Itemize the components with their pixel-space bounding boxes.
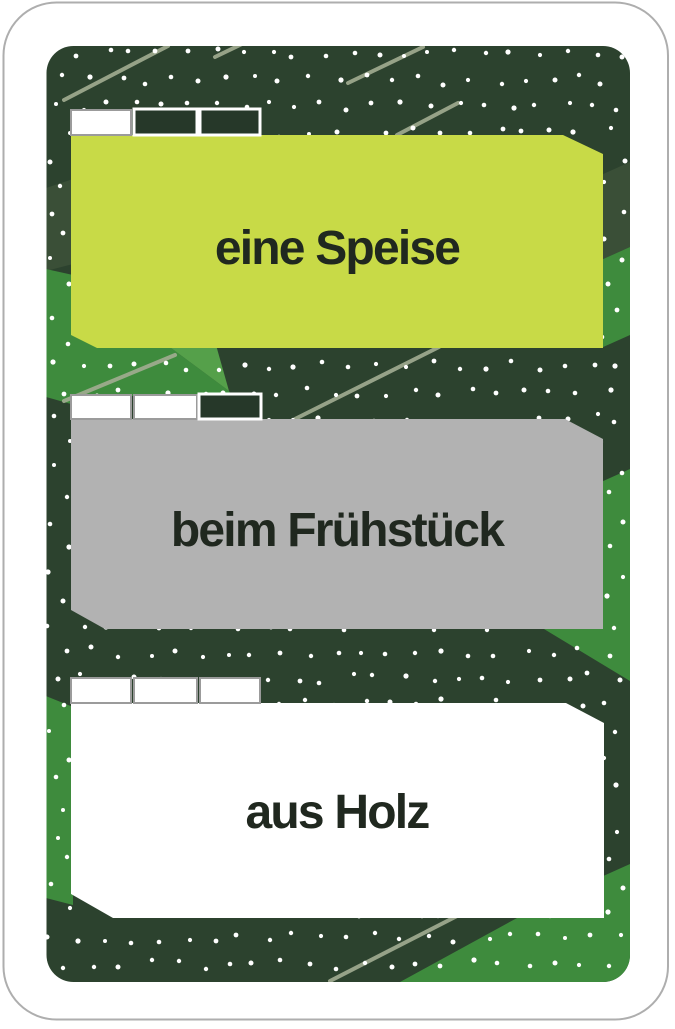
svg-text:eine Speise: eine Speise [215,222,460,275]
svg-text:beim Frühstück: beim Frühstück [171,504,505,557]
svg-text:aus Holz: aus Holz [246,786,430,839]
